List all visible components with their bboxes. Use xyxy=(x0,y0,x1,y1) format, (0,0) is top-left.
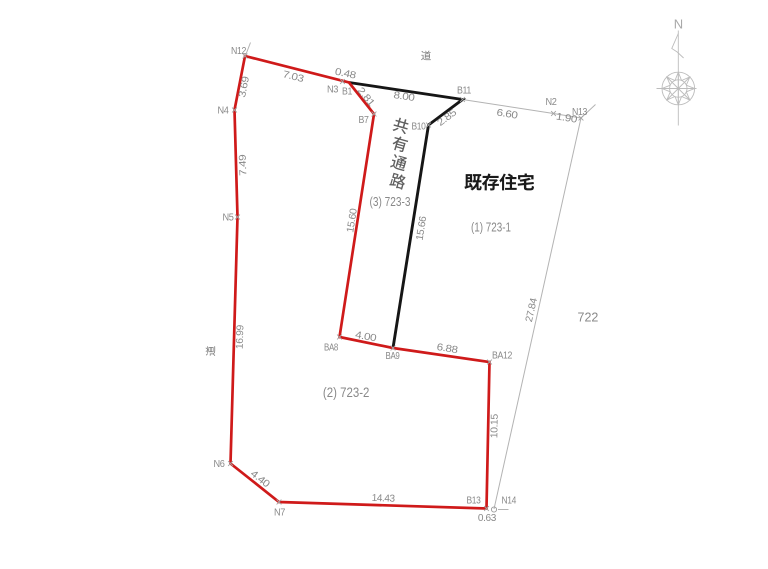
svg-text:BA8: BA8 xyxy=(324,343,338,354)
svg-text:N14: N14 xyxy=(502,496,517,507)
svg-text:16.99: 16.99 xyxy=(235,324,247,349)
svg-text:B11: B11 xyxy=(457,86,471,97)
svg-text:N6: N6 xyxy=(214,459,225,470)
svg-text:7.49: 7.49 xyxy=(238,154,250,176)
svg-text:B7: B7 xyxy=(359,115,369,126)
svg-text:0.63: 0.63 xyxy=(478,513,497,524)
svg-text:N4: N4 xyxy=(218,106,230,117)
svg-text:(1) 723-1: (1) 723-1 xyxy=(471,221,511,235)
svg-text:(2) 723-2: (2) 723-2 xyxy=(323,385,370,400)
svg-text:N: N xyxy=(674,17,683,32)
svg-text:BA9: BA9 xyxy=(386,351,400,362)
svg-text:B13: B13 xyxy=(467,496,481,507)
svg-text:722: 722 xyxy=(578,311,599,325)
svg-text:N12: N12 xyxy=(231,46,246,57)
svg-text:N3: N3 xyxy=(327,85,338,96)
svg-text:B1: B1 xyxy=(342,87,352,98)
svg-text:N7: N7 xyxy=(274,508,285,519)
svg-text:N2: N2 xyxy=(546,97,557,108)
svg-text:N13: N13 xyxy=(572,107,587,118)
svg-text:N5: N5 xyxy=(223,213,234,224)
svg-text:(3) 723-3: (3) 723-3 xyxy=(370,195,411,209)
svg-text:B10: B10 xyxy=(412,122,427,133)
svg-text:10.15: 10.15 xyxy=(489,413,500,438)
svg-text:14.43: 14.43 xyxy=(372,493,396,505)
svg-text:BA12: BA12 xyxy=(492,351,512,362)
